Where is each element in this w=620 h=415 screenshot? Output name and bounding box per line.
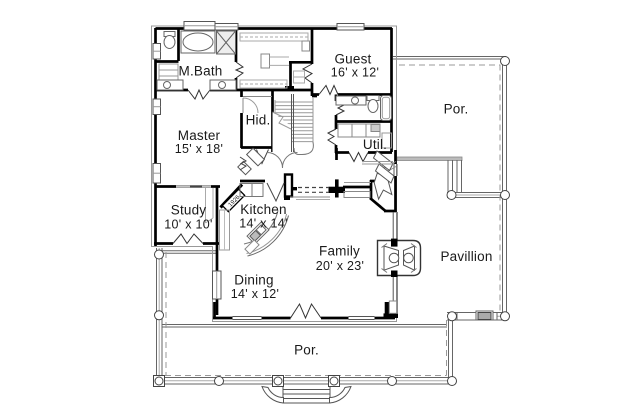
- svg-text:Family: Family: [319, 244, 360, 259]
- svg-text:Dining: Dining: [234, 273, 273, 288]
- svg-text:Por.: Por.: [294, 343, 319, 358]
- svg-text:Kitchen: Kitchen: [240, 202, 286, 217]
- svg-text:14' x 14': 14' x 14': [239, 217, 287, 231]
- svg-text:Util.: Util.: [363, 137, 387, 152]
- svg-text:20' x 23': 20' x 23': [316, 259, 364, 273]
- svg-text:Study: Study: [171, 203, 207, 218]
- svg-text:15' x 18': 15' x 18': [175, 142, 223, 156]
- svg-text:Pavillion: Pavillion: [440, 249, 492, 264]
- svg-text:Hid.: Hid.: [246, 113, 271, 128]
- svg-text:16' x 12': 16' x 12': [331, 66, 379, 80]
- svg-text:Por.: Por.: [444, 102, 469, 117]
- svg-text:Guest: Guest: [334, 52, 371, 67]
- svg-text:14' x 12': 14' x 12': [231, 287, 279, 301]
- svg-text:Master: Master: [178, 128, 221, 143]
- svg-text:M.Bath: M.Bath: [179, 64, 223, 79]
- svg-text:10' x 10': 10' x 10': [164, 218, 212, 232]
